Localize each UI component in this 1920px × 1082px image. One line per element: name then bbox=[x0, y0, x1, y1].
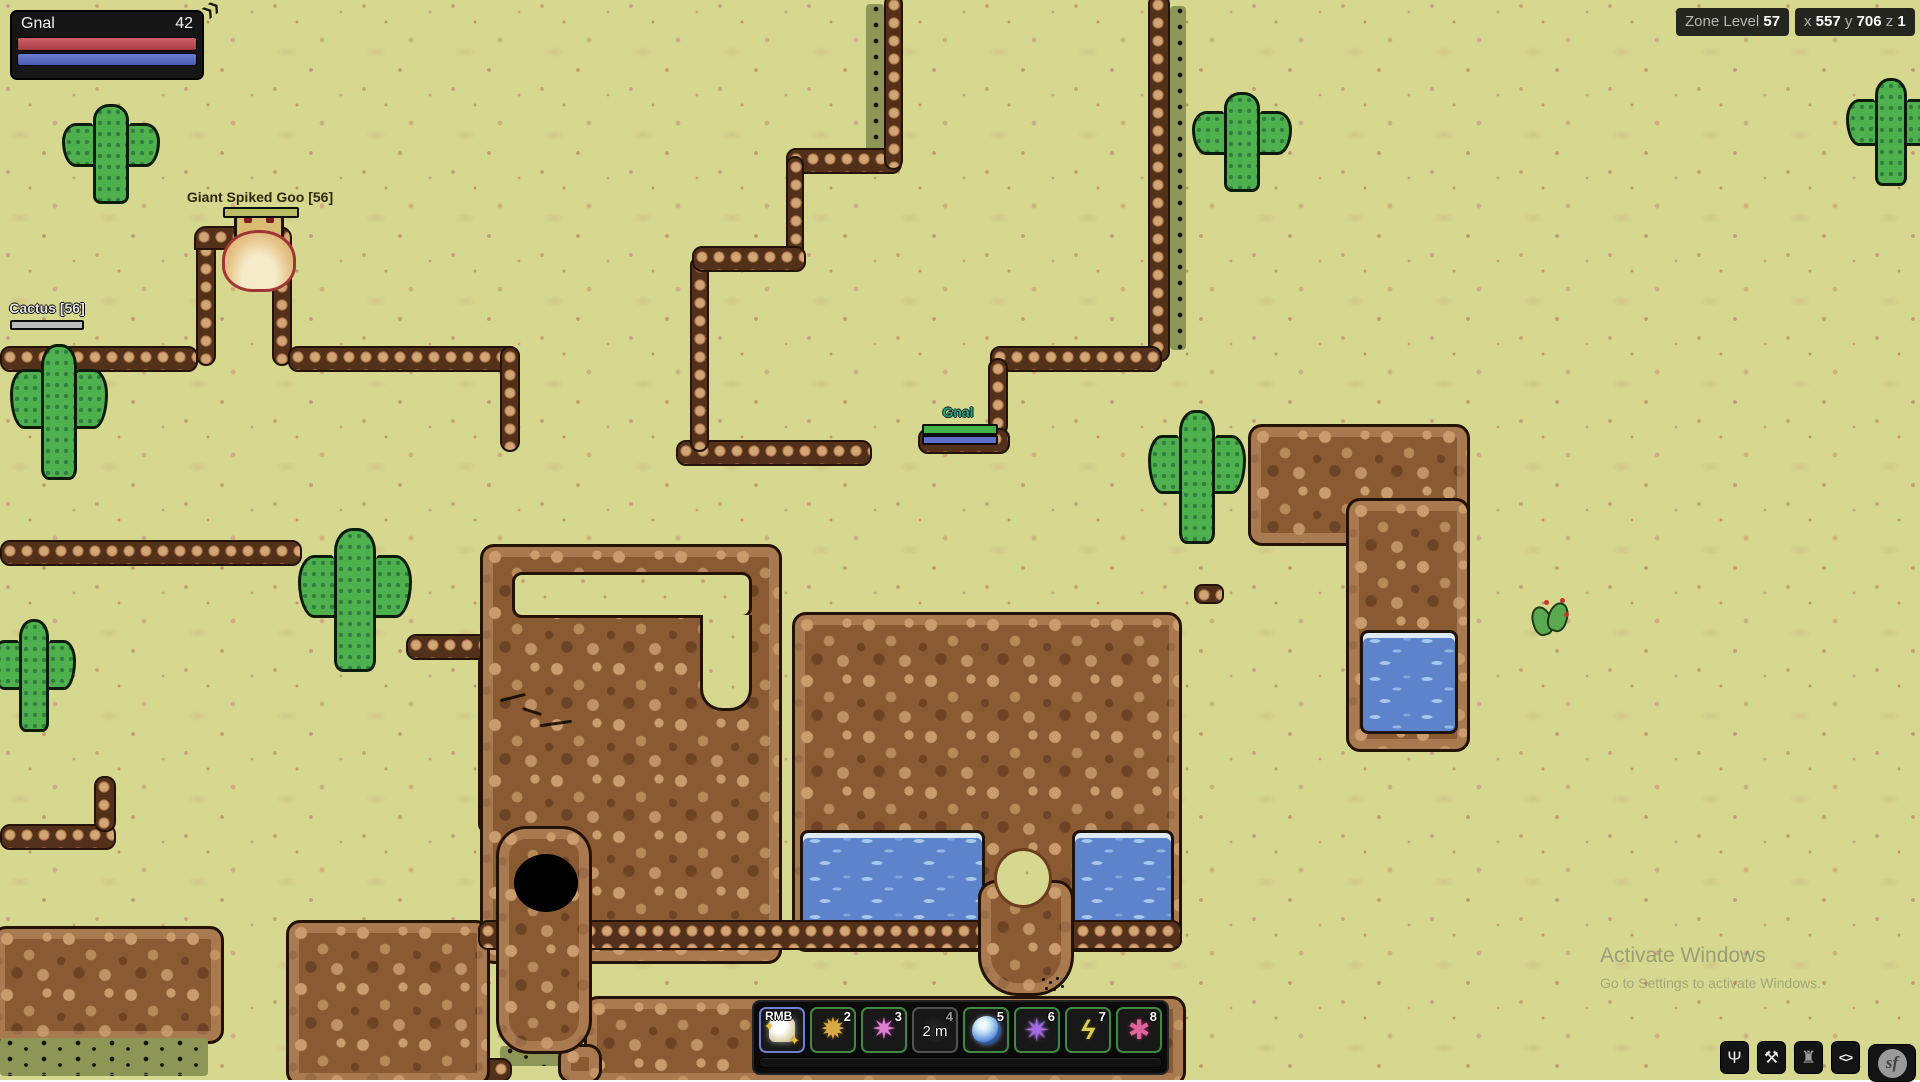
cactus-plant bbox=[62, 100, 160, 204]
terrain-ridge bbox=[692, 246, 806, 272]
windows-watermark: Activate Windows Go to Settings to activ… bbox=[1600, 944, 1821, 991]
pebble-cluster bbox=[1194, 584, 1224, 604]
coordinates-box: x 557 y 706 z 1 bbox=[1795, 8, 1915, 36]
hotbar-slot-5[interactable]: 5 bbox=[963, 1007, 1009, 1053]
player-name-label: Gnal bbox=[942, 404, 973, 420]
hotbar-slot-6[interactable]: 6 ✴ bbox=[1014, 1007, 1060, 1053]
hotbar-key-label: 8 bbox=[1150, 1009, 1157, 1024]
sf-logo-button[interactable]: sf bbox=[1868, 1044, 1916, 1082]
sparkle-icon: ✦ bbox=[789, 1033, 800, 1049]
zone-level-label: Zone Level bbox=[1685, 13, 1759, 30]
cooldown-timer: 2 m bbox=[914, 1023, 956, 1040]
coord-y-value: 706 bbox=[1857, 13, 1882, 30]
terrain-ridge bbox=[0, 540, 302, 566]
cactus-plant bbox=[0, 614, 76, 732]
coord-y-label: y bbox=[1845, 13, 1853, 30]
pickaxe-icon: ⚒ bbox=[1764, 1048, 1779, 1068]
hotbar-key-label: 7 bbox=[1099, 1009, 1106, 1024]
creature-button[interactable]: ♜ bbox=[1794, 1041, 1823, 1074]
hotbar-key-label: 3 bbox=[895, 1009, 902, 1024]
terrain-ridge bbox=[288, 346, 520, 372]
zone-level-box: Zone Level 57 bbox=[1676, 8, 1789, 36]
terrain-ridge bbox=[884, 0, 903, 170]
sand-inlet bbox=[512, 572, 752, 618]
watermark-line2: Go to Settings to activate Windows. bbox=[1600, 975, 1821, 991]
grass-shadow-strip bbox=[0, 1038, 208, 1074]
hotbar-slot-4[interactable]: 4 2 m bbox=[912, 1007, 958, 1053]
flowering-cactus bbox=[1530, 598, 1576, 646]
ridge-shadow bbox=[1170, 6, 1186, 350]
water-pool bbox=[1360, 630, 1458, 734]
dirt-slab bbox=[286, 920, 490, 1080]
terrain-ridge bbox=[690, 256, 709, 452]
hotbar-slot-2[interactable]: 2 ✹ bbox=[810, 1007, 856, 1053]
cactus-health-bar bbox=[10, 320, 84, 330]
corner-toolbar: Ψ ⚒ ♜ <> sf bbox=[1720, 1041, 1916, 1074]
cave-hole[interactable] bbox=[514, 854, 578, 912]
coord-x-value: 557 bbox=[1816, 13, 1841, 30]
dirt-slab bbox=[0, 926, 224, 1044]
hotbar-key-label: 5 bbox=[997, 1009, 1004, 1024]
player-frame-value: 42 bbox=[175, 15, 193, 33]
pickaxe-button[interactable]: ⚒ bbox=[1757, 1041, 1786, 1074]
character-button[interactable]: Ψ bbox=[1720, 1041, 1749, 1074]
sand-circle bbox=[994, 848, 1052, 908]
goo-name-label: Giant Spiked Goo [56] bbox=[187, 189, 333, 205]
hotbar-slot-7[interactable]: 7 ϟ bbox=[1065, 1007, 1111, 1053]
cactus-plant bbox=[1846, 74, 1920, 186]
terrain-ridge bbox=[500, 346, 520, 452]
water-pool bbox=[1072, 830, 1174, 928]
hotbar-key-label: 2 bbox=[844, 1009, 851, 1024]
cactus-plant bbox=[1192, 88, 1292, 192]
player-frame-mana-bar bbox=[17, 53, 197, 66]
game-map[interactable]: Giant Spiked Goo [56] Cactus [56] Gnal bbox=[0, 0, 1920, 1080]
cactus-plant[interactable] bbox=[10, 338, 108, 480]
player-frame-name: Gnal bbox=[21, 15, 55, 33]
terrain-ridge bbox=[94, 776, 116, 832]
coord-z-value: 1 bbox=[1897, 13, 1905, 30]
player-frame-health-bar bbox=[17, 37, 197, 51]
pink-spike-orb-icon: ✷ bbox=[871, 1015, 896, 1045]
coord-x-label: x bbox=[1804, 13, 1812, 30]
terrain-ridge bbox=[990, 346, 1162, 372]
hotbar-key-label: 6 bbox=[1048, 1009, 1055, 1024]
player-unit-frame[interactable]: Gnal 42 ❯❯ bbox=[10, 10, 204, 80]
hotbar: RMB ✦ ✦ 2 ✹ 3 ✷ 4 2 m 5 6 ✴ bbox=[752, 1000, 1169, 1075]
giant-spiked-goo-sprite[interactable] bbox=[222, 210, 298, 294]
hotbar-key-label: 4 bbox=[946, 1009, 953, 1024]
watermark-line1: Activate Windows bbox=[1600, 944, 1821, 968]
goo-health-bar bbox=[223, 207, 299, 218]
player-mana-bar bbox=[922, 435, 998, 445]
creature-icon: ♜ bbox=[1801, 1048, 1816, 1068]
zone-level-value: 57 bbox=[1763, 13, 1780, 30]
terrain-ridge bbox=[196, 240, 216, 366]
cactus-name-label: Cactus [56] bbox=[9, 300, 84, 316]
player-health-bar bbox=[922, 424, 998, 435]
magenta-figure-icon: ✱ bbox=[1128, 1017, 1151, 1044]
cactus-plant bbox=[298, 522, 412, 672]
hotbar-key-label: RMB bbox=[765, 1009, 792, 1023]
sprint-figure-icon: ϟ bbox=[1081, 1017, 1095, 1044]
gold-burst-icon: ✹ bbox=[820, 1015, 845, 1045]
sf-logo-icon: sf bbox=[1878, 1049, 1907, 1078]
hotbar-slot-8[interactable]: 8 ✱ bbox=[1116, 1007, 1162, 1053]
hotbar-slot-1[interactable]: RMB ✦ ✦ bbox=[759, 1007, 805, 1053]
code-button[interactable]: <> bbox=[1831, 1041, 1860, 1074]
sand-channel bbox=[700, 615, 752, 711]
water-pool bbox=[800, 830, 985, 928]
purple-starburst-icon: ✴ bbox=[1024, 1014, 1051, 1046]
footprints bbox=[1042, 978, 1045, 981]
ridge-shadow bbox=[866, 4, 884, 152]
terrain-ridge bbox=[1148, 0, 1170, 362]
character-figure-icon: Ψ bbox=[1727, 1048, 1741, 1068]
hotbar-slot-3[interactable]: 3 ✷ bbox=[861, 1007, 907, 1053]
code-brackets-icon: <> bbox=[1839, 1050, 1852, 1065]
coord-z-label: z bbox=[1886, 13, 1894, 30]
experience-bar bbox=[759, 1057, 1162, 1068]
cactus-plant bbox=[1148, 404, 1246, 544]
